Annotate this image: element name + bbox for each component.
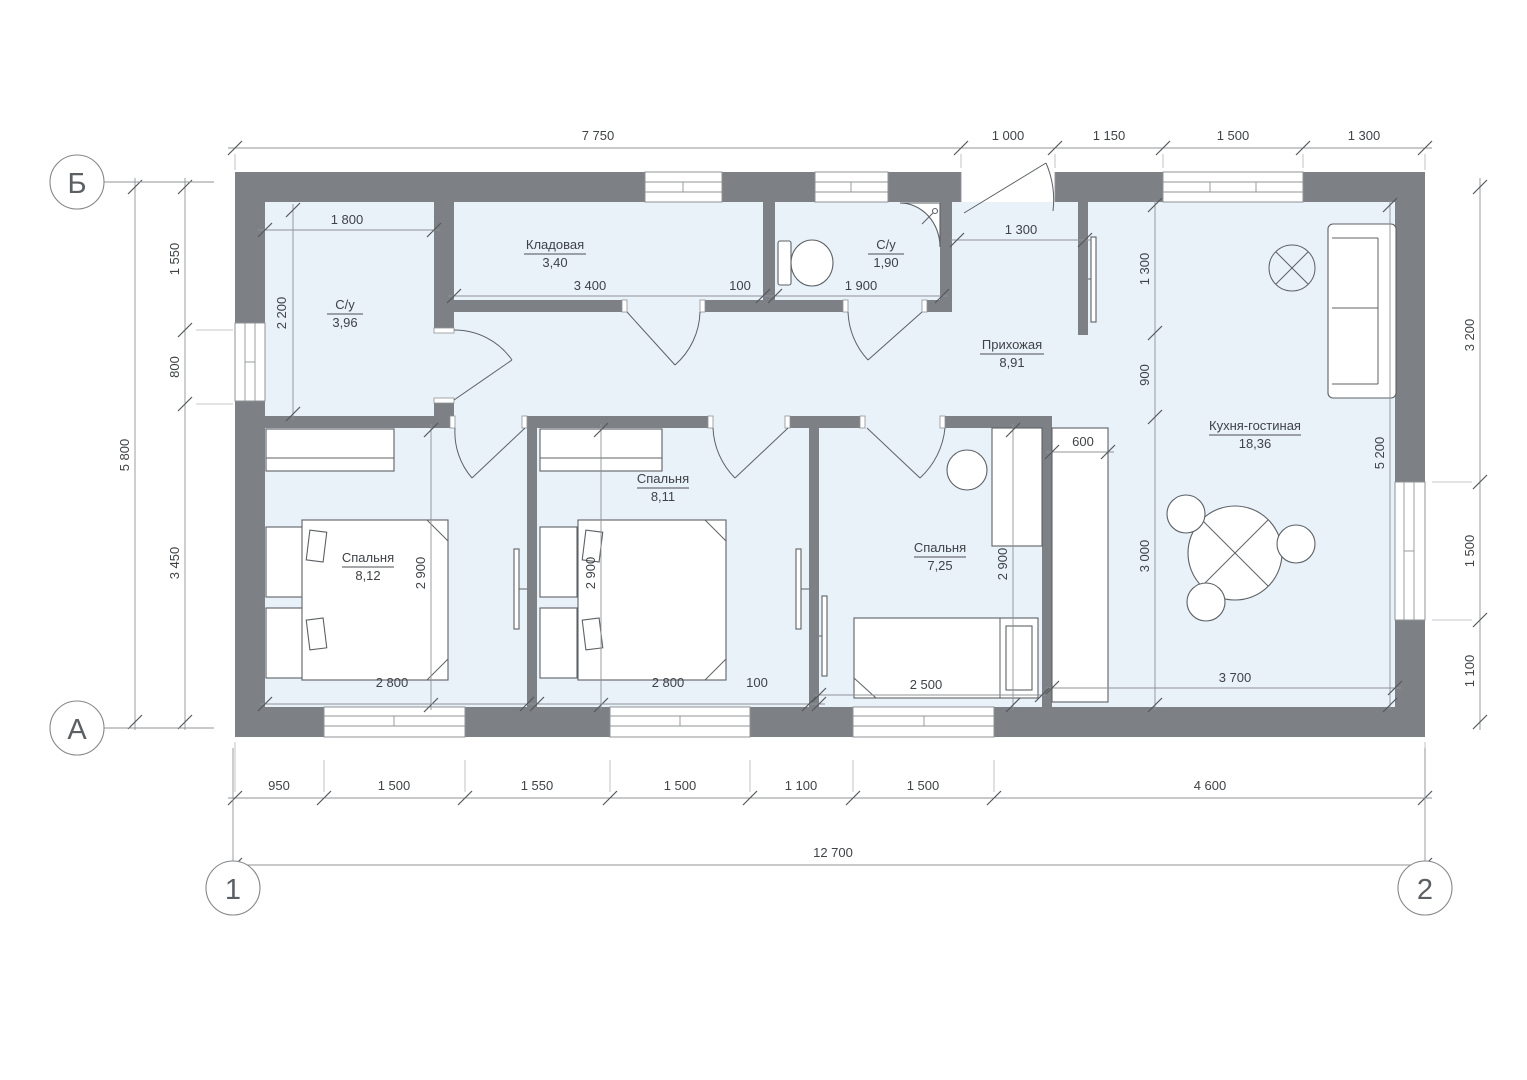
nightstand — [266, 527, 303, 597]
desk — [992, 428, 1042, 546]
svg-text:1 300: 1 300 — [1137, 253, 1152, 286]
svg-text:Прихожая: Прихожая — [982, 337, 1042, 352]
pillow — [306, 618, 327, 650]
svg-text:2 500: 2 500 — [910, 677, 943, 692]
svg-text:8,91: 8,91 — [999, 355, 1024, 370]
svg-text:7,25: 7,25 — [927, 558, 952, 573]
svg-text:8,11: 8,11 — [651, 489, 675, 504]
svg-text:8,12: 8,12 — [355, 568, 380, 583]
svg-text:3 400: 3 400 — [574, 278, 607, 293]
svg-text:3,40: 3,40 — [542, 255, 567, 270]
svg-text:1 800: 1 800 — [331, 212, 364, 227]
window-bedroom3 — [853, 707, 994, 737]
dim-chain-left: 1 550 800 3 450 — [167, 178, 233, 730]
svg-text:5 800: 5 800 — [117, 439, 132, 472]
svg-text:1 500: 1 500 — [664, 778, 697, 793]
floor-plan-sheet: С/у 3,96 Кладовая 3,40 С/у 1,90 Прихожая… — [0, 0, 1527, 1080]
tv — [822, 596, 827, 676]
svg-text:2 800: 2 800 — [376, 675, 409, 690]
dim-chain-top: 7 750 1 000 1 150 1 500 1 300 — [228, 128, 1432, 170]
svg-text:1 300: 1 300 — [1005, 222, 1038, 237]
floor-plan-drawing: С/у 3,96 Кладовая 3,40 С/у 1,90 Прихожая… — [0, 0, 1527, 1080]
window-bedroom1 — [324, 707, 465, 737]
axis-marker-a: А — [50, 701, 214, 755]
dim-total-bottom: 12 700 — [228, 845, 1432, 872]
pillow — [306, 530, 327, 562]
sofa — [1328, 224, 1396, 398]
wardrobe — [266, 429, 394, 471]
svg-text:3 000: 3 000 — [1137, 540, 1152, 573]
nightstand — [266, 608, 303, 678]
svg-text:Спальня: Спальня — [637, 471, 689, 486]
svg-text:600: 600 — [1072, 434, 1094, 449]
window-kitchen-right — [1395, 482, 1425, 620]
kitchen-wardrobe — [1052, 428, 1108, 702]
axis-marker-2: 2 — [1398, 748, 1452, 915]
svg-text:1: 1 — [225, 874, 241, 906]
svg-text:4 600: 4 600 — [1194, 778, 1227, 793]
svg-text:С/у: С/у — [876, 237, 896, 252]
svg-text:С/у: С/у — [335, 297, 355, 312]
tv — [514, 549, 519, 629]
svg-text:Б: Б — [67, 168, 86, 200]
svg-text:3 200: 3 200 — [1462, 319, 1477, 352]
svg-text:800: 800 — [167, 356, 182, 378]
svg-text:1 100: 1 100 — [1462, 655, 1477, 688]
svg-text:2 800: 2 800 — [652, 675, 685, 690]
nightstand — [540, 527, 577, 597]
svg-text:Кухня-гостиная: Кухня-гостиная — [1209, 418, 1301, 433]
pillow — [582, 618, 603, 650]
svg-text:2 900: 2 900 — [583, 557, 598, 590]
svg-text:950: 950 — [268, 778, 290, 793]
svg-text:1 500: 1 500 — [378, 778, 411, 793]
svg-text:1 000: 1 000 — [992, 128, 1025, 143]
axis-marker-b: Б — [50, 155, 214, 209]
svg-text:Спальня: Спальня — [342, 550, 394, 565]
svg-text:12 700: 12 700 — [813, 845, 853, 860]
dim-total-left: 5 800 — [117, 178, 142, 730]
chair — [1167, 495, 1205, 533]
svg-text:100: 100 — [729, 278, 751, 293]
svg-text:1,90: 1,90 — [873, 255, 898, 270]
svg-text:2 900: 2 900 — [413, 557, 428, 590]
nightstand — [540, 608, 577, 678]
svg-text:1 150: 1 150 — [1093, 128, 1126, 143]
pillow — [1006, 626, 1032, 690]
desk-chair — [947, 450, 987, 490]
svg-text:3,96: 3,96 — [332, 315, 357, 330]
svg-text:7 750: 7 750 — [582, 128, 615, 143]
svg-text:А: А — [67, 714, 87, 746]
svg-text:5 200: 5 200 — [1372, 437, 1387, 470]
svg-text:2 200: 2 200 — [274, 297, 289, 330]
dim-chain-right: 3 200 1 500 1 100 — [1432, 178, 1487, 730]
svg-text:Спальня: Спальня — [914, 540, 966, 555]
svg-text:1 900: 1 900 — [845, 278, 878, 293]
window-kitchen-top — [1163, 172, 1303, 202]
svg-text:1 550: 1 550 — [167, 243, 182, 276]
svg-text:1 500: 1 500 — [907, 778, 940, 793]
window-bath1-left — [235, 323, 265, 401]
window-bath2 — [815, 172, 888, 202]
window-bedroom2 — [610, 707, 750, 737]
window-storage — [645, 172, 722, 202]
svg-text:Кладовая: Кладовая — [526, 237, 584, 252]
svg-text:1 500: 1 500 — [1217, 128, 1250, 143]
svg-text:1 500: 1 500 — [1462, 535, 1477, 568]
chair — [1187, 583, 1225, 621]
tv — [796, 549, 801, 629]
dim-chain-bottom: 950 1 500 1 550 1 500 1 100 1 500 4 600 — [228, 742, 1432, 805]
axis-marker-1: 1 — [206, 748, 260, 915]
svg-text:1 300: 1 300 — [1348, 128, 1381, 143]
svg-text:3 450: 3 450 — [167, 547, 182, 580]
svg-text:2: 2 — [1417, 874, 1433, 906]
svg-text:1 100: 1 100 — [785, 778, 818, 793]
svg-text:1 550: 1 550 — [521, 778, 554, 793]
chair — [1277, 525, 1315, 563]
svg-text:3 700: 3 700 — [1219, 670, 1252, 685]
svg-text:100: 100 — [746, 675, 768, 690]
svg-text:900: 900 — [1137, 364, 1152, 386]
svg-text:18,36: 18,36 — [1239, 436, 1272, 451]
toilet — [778, 240, 833, 286]
svg-text:2 900: 2 900 — [995, 548, 1010, 581]
